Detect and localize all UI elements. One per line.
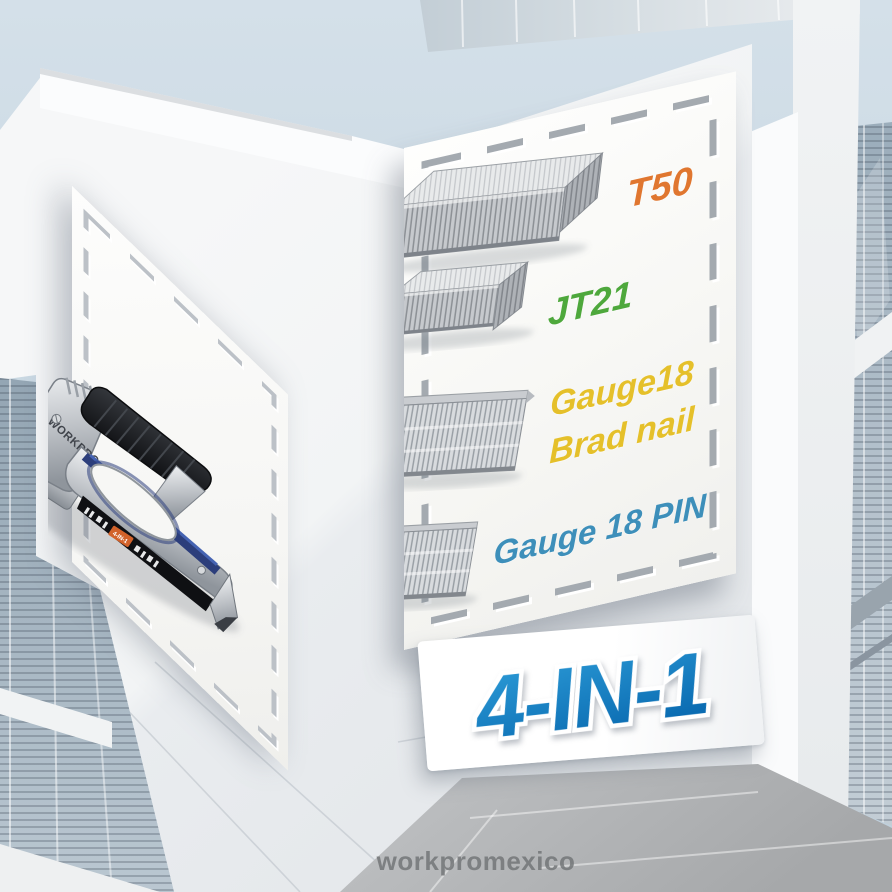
staples-guide-panel: T50 JT21 Gauge18 Brad nail Gauge 18 PIN	[404, 71, 736, 650]
banner-text: 4-IN-1	[468, 633, 712, 758]
staple-gun-graphic: WORKPRO 4-IN-1	[48, 326, 308, 676]
watermark-text: workpromexico	[377, 846, 576, 877]
nail-strip-brad	[404, 390, 537, 492]
banner-art: 4-IN-1	[417, 615, 764, 772]
staple-strip-t50	[404, 153, 602, 278]
four-in-one-banner: 4-IN-1	[417, 615, 764, 772]
product-advert-scene: WORKPRO 4-IN-1	[0, 0, 892, 892]
